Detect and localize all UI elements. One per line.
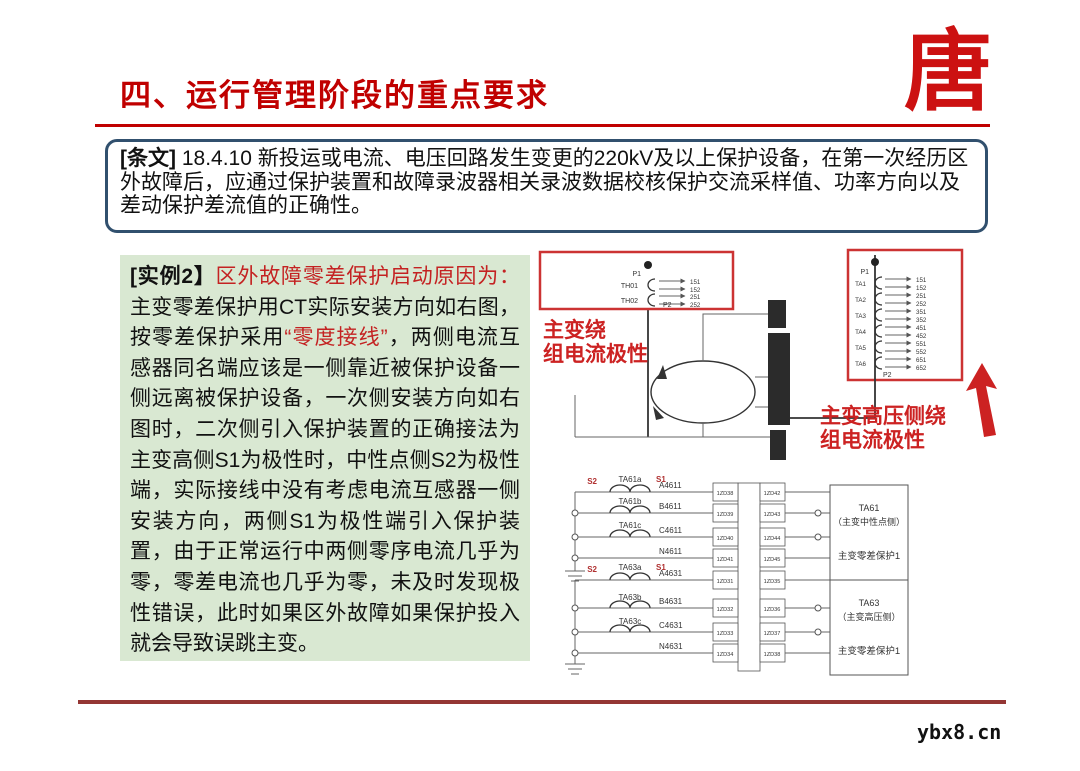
annotation-hv-polarity-1: 主变高压侧绕 <box>820 404 946 428</box>
terminal-label: 1ZD38 <box>717 491 734 497</box>
example-red-term: “零度接线” <box>284 326 387 349</box>
winding-polarity-box-right: P1 TA1 151 152 TA2 251 252 TA3 351 352 T… <box>848 250 962 385</box>
terminal-label: 1ZD37 <box>764 631 781 637</box>
ct-name: TH01 <box>621 283 638 290</box>
protection-box-ta63 <box>830 580 908 675</box>
article-label: [条文] <box>120 147 176 170</box>
example-box: [实例2】区外故障零差保护启动原因为：主变零差保护用CT实际安装方向如右图，按零… <box>120 255 530 661</box>
bus-bar-bottom <box>770 430 786 460</box>
bus-bar-main <box>768 333 790 425</box>
current-arrow-up-icon <box>657 365 667 379</box>
red-arrow-icon <box>966 363 997 437</box>
lead-label: 452 <box>916 333 927 340</box>
lead-label: 552 <box>916 349 927 356</box>
example-body-2: ，两侧电流互感器同名端应该是一侧靠近被保护设备一侧远离被保护设备，一次侧安装方向… <box>130 326 520 655</box>
ct-label: TA63b <box>619 593 643 602</box>
example-label: [实例2】 <box>130 265 216 288</box>
terminal-label: 1ZD31 <box>717 579 734 585</box>
ct-label: TA61a <box>619 475 643 484</box>
circuit-diagram: P1 TH01 151 152 TH02 251 252 P2 主变绕 组电流极… <box>535 245 1010 690</box>
bus-bar-top <box>768 300 786 328</box>
lead-label: 251 <box>690 294 701 301</box>
terminal-label: 1ZD35 <box>764 579 781 585</box>
page-title: 四、运行管理阶段的重点要求 <box>120 70 549 115</box>
terminal-label: 1ZD39 <box>717 512 734 518</box>
p2-label: P2 <box>663 302 672 309</box>
ct-coil-icon <box>610 573 650 580</box>
ct-coil-icon <box>610 601 650 608</box>
secondary-wiring-diagram: S2 TA61a S1 TA61b TA61c S2 TA63a S1 TA63… <box>565 475 908 675</box>
lead-label: 151 <box>690 279 701 286</box>
ct-name: TA6 <box>855 361 866 368</box>
p1-label: P1 <box>632 271 641 278</box>
terminal-label: 1ZD34 <box>717 652 734 658</box>
lead-label: 151 <box>916 277 927 284</box>
p2-label: P2 <box>883 372 892 379</box>
ct-name: TA5 <box>855 345 866 352</box>
lead-label: 352 <box>916 317 927 324</box>
article-body: 18.4.10 新投运或电流、电压回路发生变更的220kV及以上保护设备，在第一… <box>120 147 968 217</box>
lead-label: 252 <box>690 302 701 309</box>
ct-label: TA63a <box>619 563 643 572</box>
wire-label: C4611 <box>659 526 683 535</box>
watermark: ybx8.cn <box>917 720 1001 744</box>
box-title: TA61 <box>859 503 880 513</box>
box-caption: 主变零差保护1 <box>838 550 900 562</box>
article-box: [条文] 18.4.10 新投运或电流、电压回路发生变更的220kV及以上保护设… <box>105 139 988 233</box>
wire-label: N4611 <box>659 547 683 556</box>
ct-name: TA4 <box>855 329 866 336</box>
ct-coil-icon <box>610 625 650 632</box>
terminal-label: 1ZD43 <box>764 512 781 518</box>
terminal-label: 1ZD36 <box>764 607 781 613</box>
ct-name: TA1 <box>855 281 866 288</box>
box-caption: 主变零差保护1 <box>838 645 900 657</box>
ct-label: TA61c <box>619 521 642 530</box>
box-title: TA63 <box>859 598 880 608</box>
wire-label: B4631 <box>659 597 683 606</box>
terminal-label: 1ZD44 <box>764 536 781 542</box>
terminal-dot <box>871 258 879 266</box>
box-subtitle: （主变中性点侧） <box>833 516 905 527</box>
wire-label: N4631 <box>659 642 683 651</box>
terminal-strip-center <box>738 483 760 671</box>
terminal-label: 1ZD33 <box>717 631 734 637</box>
ct-label: TA61b <box>619 497 643 506</box>
lead-label: 251 <box>916 293 927 300</box>
lead-label: 551 <box>916 341 927 348</box>
s2-polarity-label: S2 <box>587 477 597 486</box>
wire-label: A4631 <box>659 569 683 578</box>
protection-box-ta61 <box>830 485 908 580</box>
annotation-winding-polarity-1: 主变绕 <box>543 318 606 342</box>
terminal-label: 1ZD45 <box>764 557 781 563</box>
lead-label: 351 <box>916 309 927 316</box>
lead-label: 252 <box>916 301 927 308</box>
slide: { "slide": { "title": "四、运行管理阶段的重点要求", "… <box>0 0 1080 771</box>
terminal-label: 1ZD38 <box>764 652 781 658</box>
ct-coil-icon <box>610 485 650 492</box>
ct-name: TA2 <box>855 297 866 304</box>
ct-name: TA3 <box>855 313 866 320</box>
p1-label: P1 <box>860 269 869 276</box>
box-subtitle: （主变高压侧） <box>837 611 900 622</box>
terminal-dot <box>644 261 652 269</box>
ct-name: TH02 <box>621 298 638 305</box>
terminal-label: 1ZD42 <box>764 491 781 497</box>
wire-label: C4631 <box>659 621 683 630</box>
terminal-label: 1ZD32 <box>717 607 734 613</box>
winding-polarity-box-left: P1 TH01 151 152 TH02 251 252 P2 <box>540 252 733 309</box>
lead-label: 651 <box>916 357 927 364</box>
lead-label: 152 <box>690 287 701 294</box>
footer-divider <box>78 700 1006 704</box>
annotation-hv-polarity-2: 组电流极性 <box>820 428 925 452</box>
datang-logo: 唐 <box>904 28 992 116</box>
ct-coil-icon <box>610 506 650 513</box>
lead-label: 152 <box>916 285 927 292</box>
lead-label: 451 <box>916 325 927 332</box>
s2-polarity-label: S2 <box>587 565 597 574</box>
terminal-label: 1ZD40 <box>717 536 734 542</box>
ct-coil-icon <box>610 530 650 537</box>
example-red-intro: 区外故障零差保护启动原因为： <box>216 265 520 288</box>
terminal-label: 1ZD41 <box>717 557 734 563</box>
lead-label: 652 <box>916 365 927 372</box>
wire-label: A4611 <box>659 481 682 490</box>
title-divider <box>95 124 990 127</box>
annotation-winding-polarity-2: 组电流极性 <box>543 342 648 366</box>
ct-label: TA63c <box>619 617 642 626</box>
wire-label: B4611 <box>659 502 682 511</box>
